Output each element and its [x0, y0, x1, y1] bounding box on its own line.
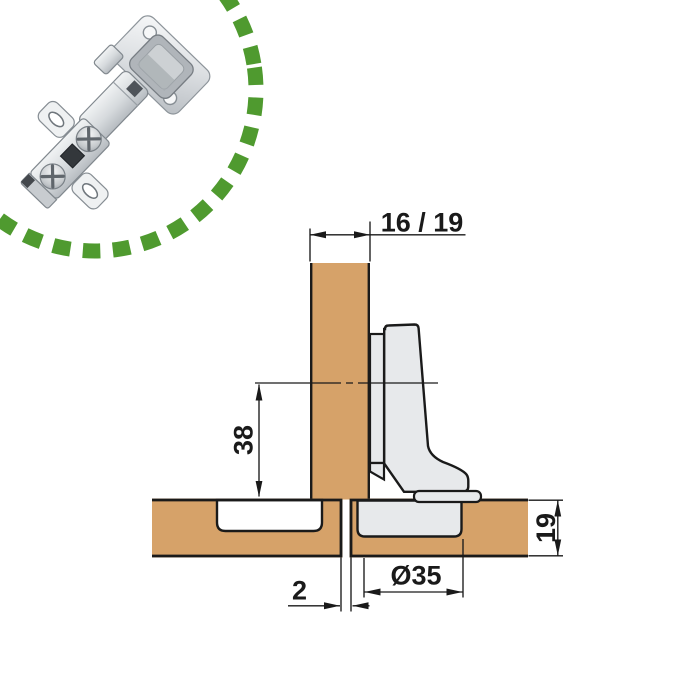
arrowhead	[324, 602, 340, 609]
cup-flange-tab	[414, 491, 481, 502]
arrowhead	[354, 231, 370, 238]
arrowhead	[365, 589, 381, 596]
cabinet-panel	[310, 263, 370, 500]
dim-label-door-gap: 2	[292, 576, 307, 606]
technical-drawing: 16 / 19 38 2 Ø35 19	[152, 208, 563, 612]
dim-label-axis-distance: 38	[229, 425, 259, 455]
mounting-plate-strip-lower	[370, 463, 384, 480]
arrowhead	[353, 602, 369, 609]
hinge-arm	[384, 325, 468, 492]
hinge-mounting-diagram: 16 / 19 38 2 Ø35 19	[0, 0, 700, 700]
cup-recess-empty	[217, 500, 322, 531]
dim-label-door-thickness: 19	[531, 513, 561, 543]
hinge-photo	[0, 7, 219, 234]
arrowhead	[447, 589, 463, 596]
mounting-plate-strip	[370, 334, 384, 463]
arrowhead	[310, 231, 326, 238]
dim-label-panel-thickness: 16 / 19	[381, 208, 464, 238]
dim-panel-thickness: 16 / 19	[310, 208, 466, 262]
arrowhead	[256, 384, 263, 401]
dim-door-gap: 2	[288, 558, 370, 612]
arrowhead	[256, 481, 263, 497]
dim-door-thickness: 19	[529, 500, 564, 556]
hinge-cup-section	[358, 501, 462, 537]
dim-axis-distance: 38	[229, 384, 263, 497]
dim-label-cup-diameter: Ø35	[390, 561, 441, 591]
